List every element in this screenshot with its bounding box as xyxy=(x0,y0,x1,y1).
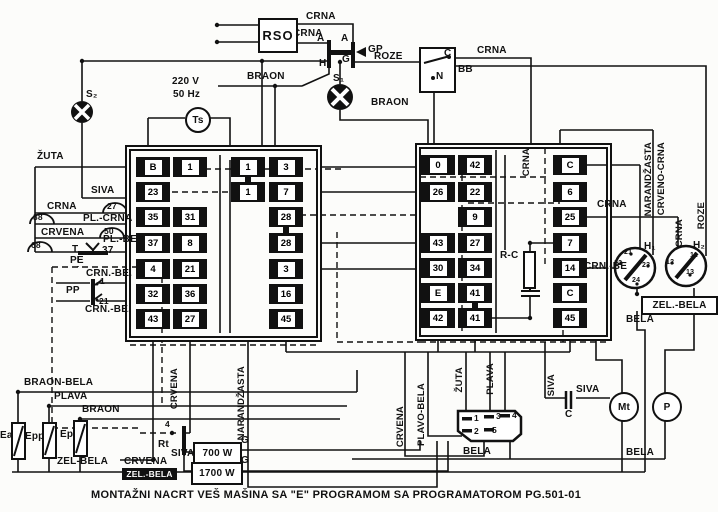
right-terminal-block-terminal-42: 42 xyxy=(458,155,492,175)
right-terminal-block-terminal-9: 9 xyxy=(458,207,492,227)
wire-zuta-left: ŽUTA xyxy=(37,151,64,162)
right-terminal-block-terminal-E: E xyxy=(421,283,455,303)
motor-pin-2: 2 xyxy=(474,426,479,436)
wire-crvena-left: CRVENA xyxy=(41,227,84,238)
wire-crvena-motor: CRVENA xyxy=(395,406,406,447)
wire-zel-bela-inverted: ZEL.-BELA xyxy=(122,468,177,480)
bb-label: BB xyxy=(458,64,473,75)
motor-pin-4: 4 xyxy=(512,410,517,420)
wire-pl-be: PL.-BE. xyxy=(103,234,140,245)
h2-pin-13: 13 xyxy=(686,269,694,276)
wire-narandzasta-mid: NARANDŽASTA xyxy=(236,366,247,440)
left-terminal-block-terminal-43: 43 xyxy=(136,309,170,329)
left-terminal-block-terminal-link xyxy=(245,176,251,183)
bb-terminal-n: N xyxy=(436,71,443,82)
left-terminal-block-terminal-32: 32 xyxy=(136,284,170,304)
left-terminal-block-terminal-16: 16 xyxy=(269,284,303,304)
heater-1700w: 1700 W xyxy=(191,462,243,485)
wire-bela-right: BELA xyxy=(626,314,654,325)
label-37: 37 xyxy=(102,245,114,256)
pp-label: PP xyxy=(66,285,80,296)
wire-bela-bottom-right: BELA xyxy=(626,447,654,458)
wire-crvena-mid: CRVENA xyxy=(169,368,180,409)
left-terminal-block-terminal-3: 3 xyxy=(269,259,303,279)
wire-plavo-bela: PLAVO-BELA xyxy=(416,383,427,446)
lamp-s2-label: S₂ xyxy=(86,89,98,100)
left-terminal-block-terminal-1: 1 xyxy=(231,182,265,202)
wire-narandzasta-right: NARANDŽASTA xyxy=(643,142,654,216)
right-terminal-block-terminal-22: 22 xyxy=(458,182,492,202)
left-terminal-block-terminal-31: 31 xyxy=(173,207,207,227)
left-terminal-block-terminal-1: 1 xyxy=(231,157,265,177)
right-terminal-block-terminal-42: 42 xyxy=(421,308,455,328)
wire-crvena-bottom: CRVENA xyxy=(124,456,167,467)
heater-epp-label: Epp xyxy=(25,431,45,442)
wire-bela-center: BELA xyxy=(463,446,491,457)
h1-pin-21: 21 xyxy=(624,249,632,256)
wire-siva-cap: SIVA xyxy=(576,384,599,395)
right-terminal-block-terminal-link xyxy=(472,302,478,309)
right-terminal-block-terminal-26: 26 xyxy=(421,182,455,202)
right-terminal-block-terminal-27: 27 xyxy=(458,233,492,253)
left-terminal-block-terminal-3: 3 xyxy=(269,157,303,177)
gp-terminal-g: G xyxy=(342,54,350,65)
wire-pl-crna: PL.-CRNA xyxy=(83,213,132,224)
bb-terminal-c: C xyxy=(444,48,451,59)
right-terminal-block-terminal-43: 43 xyxy=(421,233,455,253)
wire-crna-bb: CRNA xyxy=(477,45,507,56)
left-terminal-block-terminal-4: 4 xyxy=(136,259,170,279)
cap-c-label: C xyxy=(565,409,572,420)
right-terminal-block-terminal-0: 0 xyxy=(421,155,455,175)
rso-label: RSO xyxy=(258,18,298,53)
right-terminal-block-terminal-6: 6 xyxy=(553,182,587,202)
right-terminal-block-terminal-14: 14 xyxy=(553,258,587,278)
left-terminal-block-terminal-7: 7 xyxy=(269,182,303,202)
left-terminal-block-terminal-28: 28 xyxy=(269,233,303,253)
left-terminal-block-terminal-link xyxy=(283,226,289,234)
left-terminal-block-terminal-36: 36 xyxy=(173,284,207,304)
heater-ea-label: Ea xyxy=(0,430,13,441)
wire-siva-motor: SIVA xyxy=(546,374,557,396)
diagram-title: MONTAŽNI NACRT VEŠ MAŠINA SA "E" PROGRAM… xyxy=(91,489,581,501)
supply-frequency: 50 Hz xyxy=(173,89,200,100)
thermo-38: 38 xyxy=(33,212,43,222)
h2-label: H₂ xyxy=(693,240,705,251)
left-terminal-block-terminal-27: 27 xyxy=(173,309,207,329)
lamp-s2-icon xyxy=(71,101,93,123)
right-terminal-block-terminal-45: 45 xyxy=(553,308,587,328)
wire-zel-bela-right: ZEL.-BELA xyxy=(641,296,718,315)
right-terminal-block-terminal-C: C xyxy=(553,155,587,175)
right-terminal-block-terminal-41: 41 xyxy=(458,308,492,328)
gp-terminal-a-right: A xyxy=(341,33,348,44)
left-terminal-block-terminal-35: 35 xyxy=(136,207,170,227)
gp-terminal-a-left: A xyxy=(317,33,324,44)
rt-pin-4: 4 xyxy=(165,419,170,429)
capacitor-c-icon xyxy=(566,391,571,409)
wire-crn-be-1: CRN.-BE. xyxy=(86,268,132,279)
programmer-timer-ts: Ts xyxy=(185,107,211,133)
left-terminal-block-terminal-21: 21 xyxy=(173,259,207,279)
h1-pin-22: 22 xyxy=(614,260,622,267)
heater-elements xyxy=(12,421,87,459)
heater-ep-label: Ep xyxy=(60,429,73,440)
right-terminal-block-terminal-34: 34 xyxy=(458,258,492,278)
wire-siva-left: SIVA xyxy=(91,185,114,196)
right-terminal-block-terminal-C: C xyxy=(553,283,587,303)
thermo-68: 68 xyxy=(31,240,41,250)
motor-pin-1: 1 xyxy=(474,413,479,423)
left-terminal-block-terminal-37: 37 xyxy=(136,233,170,253)
thermo-t-label: T xyxy=(72,244,78,255)
wire-plava-motor: PLAVA xyxy=(485,363,496,395)
motor-mt: Mt xyxy=(609,392,639,422)
h1-label: H₁ xyxy=(644,241,656,252)
wire-braon-bela: BRAON-BELA xyxy=(24,377,93,388)
wire-crna-top: CRNA xyxy=(306,11,336,22)
wire-roze-right: ROZE xyxy=(696,202,707,229)
right-terminal-block-terminal-30: 30 xyxy=(421,258,455,278)
wire-crveno-crna: CRVENO-CRNA xyxy=(656,142,667,215)
motor-pin-3: 3 xyxy=(496,411,501,421)
right-terminal-block-terminal-25: 25 xyxy=(553,207,587,227)
wire-braon-bottom: BRAON xyxy=(82,404,120,415)
terminal-pe: PE xyxy=(70,255,84,266)
gp-terminal-h: H xyxy=(319,58,326,69)
wire-crn-be-2: CRN.-BE. xyxy=(85,304,131,315)
h1-pin-24: 24 xyxy=(632,277,640,284)
wire-crna-left: CRNA xyxy=(47,201,77,212)
wire-zuta-motor: ŽUTA xyxy=(454,367,465,392)
supply-voltage: 220 V xyxy=(172,76,199,87)
wire-braon-mid: BRAON xyxy=(371,97,409,108)
left-terminal-block-terminal-8: 8 xyxy=(173,233,207,253)
lamp-s1-icon xyxy=(327,84,353,110)
left-terminal-block-terminal-B: B xyxy=(136,157,170,177)
left-terminal-block-terminal-1: 1 xyxy=(173,157,207,177)
wiring-diagram: 220 V50 HzCRNACRNAAAGPHGROZES₁BRAONBRAON… xyxy=(0,0,718,512)
wire-braon-top: BRAON xyxy=(247,71,285,82)
wire-siva-bottom: SIVA xyxy=(171,448,194,459)
rt-label: Rt xyxy=(158,439,169,450)
gp-arrow-icon xyxy=(356,47,366,57)
rc-label: R-C xyxy=(500,250,518,261)
thermo-27: 27 xyxy=(107,201,117,211)
wire-plava-left: PLAVA xyxy=(54,391,87,402)
left-terminal-block-terminal-45: 45 xyxy=(269,309,303,329)
right-terminal-block-terminal-41: 41 xyxy=(458,283,492,303)
wire-crna-programmer: CRNA xyxy=(521,148,532,176)
left-terminal-block-terminal-23: 23 xyxy=(136,182,170,202)
wire-crna-right: CRNA xyxy=(597,199,627,210)
wire-crna-h2: CRNA xyxy=(674,219,685,247)
pump-p: P xyxy=(652,392,682,422)
wire-roze-top: ROZE xyxy=(374,51,403,62)
right-terminal-block-terminal-7: 7 xyxy=(553,233,587,253)
h2-pin-12: 12 xyxy=(666,259,674,266)
wire-zel-bela-left: ZEL-BELA xyxy=(57,456,108,467)
h1-pin-23: 23 xyxy=(642,262,650,269)
lamp-s1-label: S₁ xyxy=(333,73,344,84)
pp-pin-1: 1 xyxy=(100,276,105,286)
h2-pin-11: 11 xyxy=(690,252,698,259)
motor-pin-5: 5 xyxy=(492,425,497,435)
h2-connector xyxy=(666,246,706,286)
left-terminal-block-terminal-28: 28 xyxy=(269,207,303,227)
